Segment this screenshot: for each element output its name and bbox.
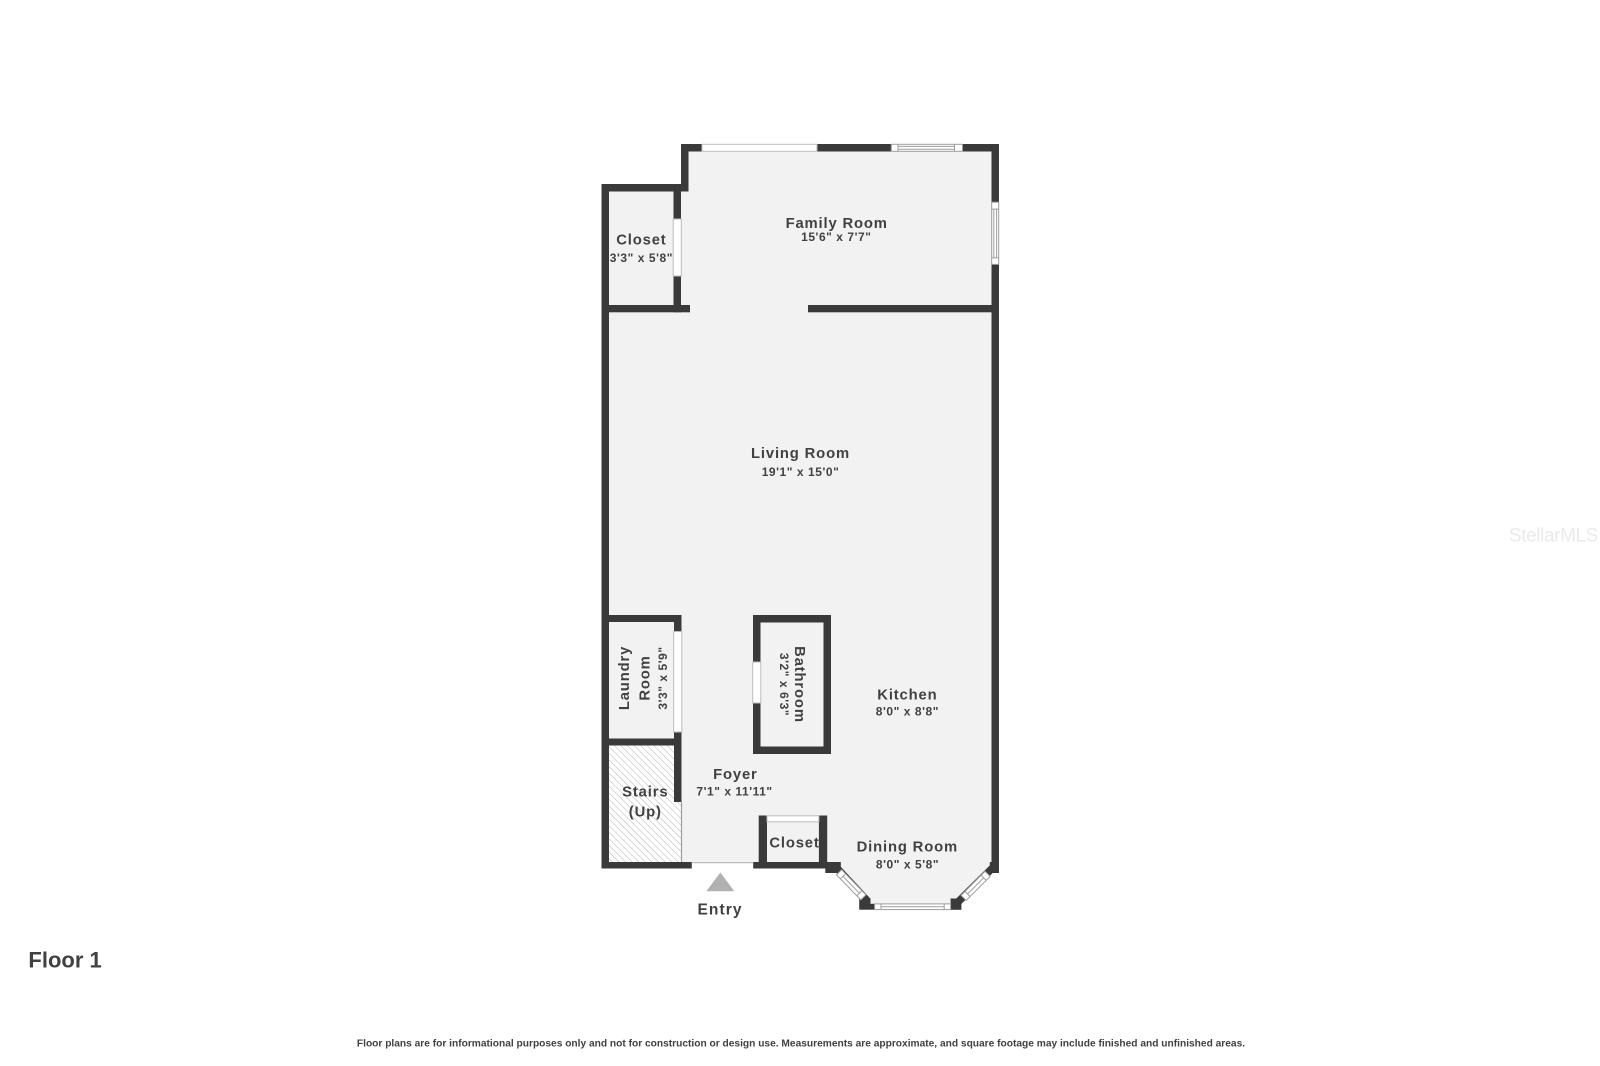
svg-text:15'6" x 7'7": 15'6" x 7'7"	[801, 230, 871, 244]
svg-text:Living Room: Living Room	[751, 446, 850, 462]
svg-text:StellarMLS: StellarMLS	[1509, 526, 1598, 547]
svg-text:19'1" x 15'0": 19'1" x 15'0"	[762, 465, 840, 479]
svg-text:3'3" x 5'9": 3'3" x 5'9"	[656, 646, 670, 709]
svg-text:8'0" x 5'8": 8'0" x 5'8"	[876, 858, 939, 872]
svg-text:3'3" x 5'8": 3'3" x 5'8"	[610, 251, 673, 265]
svg-text:Closet: Closet	[769, 835, 819, 851]
svg-text:Foyer: Foyer	[713, 767, 758, 783]
svg-text:3'2" x 6'3": 3'2" x 6'3"	[777, 653, 791, 716]
svg-text:Bathroom: Bathroom	[791, 646, 807, 723]
svg-text:Floor 1: Floor 1	[28, 948, 101, 973]
svg-text:Entry: Entry	[697, 902, 742, 919]
svg-text:Kitchen: Kitchen	[877, 688, 937, 704]
svg-text:Room: Room	[637, 655, 653, 700]
svg-text:7'1" x 11'11": 7'1" x 11'11"	[696, 785, 772, 799]
svg-text:Dining Room: Dining Room	[857, 840, 958, 856]
svg-text:Closet: Closet	[616, 232, 666, 248]
svg-text:(Up): (Up)	[629, 804, 662, 820]
svg-text:Laundry: Laundry	[617, 646, 633, 710]
svg-text:Floor plans are for informatio: Floor plans are for informational purpos…	[357, 1039, 1245, 1050]
svg-text:Stairs: Stairs	[622, 785, 668, 801]
svg-text:8'0" x 8'8": 8'0" x 8'8"	[876, 705, 939, 719]
